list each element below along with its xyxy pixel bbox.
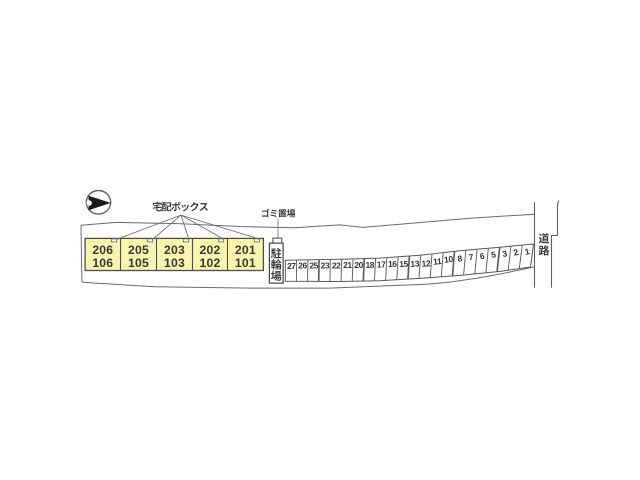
svg-text:106: 106 <box>92 256 113 270</box>
svg-text:12: 12 <box>421 258 431 269</box>
svg-text:26: 26 <box>298 261 307 271</box>
svg-text:25: 25 <box>309 261 318 271</box>
svg-text:103: 103 <box>164 256 185 270</box>
svg-text:11: 11 <box>433 256 443 267</box>
svg-text:202: 202 <box>200 243 221 257</box>
svg-text:15: 15 <box>399 259 409 269</box>
svg-text:17: 17 <box>377 260 386 270</box>
svg-text:203: 203 <box>164 243 185 257</box>
svg-text:105: 105 <box>128 256 149 270</box>
svg-text:16: 16 <box>388 259 397 269</box>
svg-text:20: 20 <box>354 260 363 270</box>
svg-text:206: 206 <box>92 243 113 257</box>
svg-text:21: 21 <box>343 260 352 270</box>
svg-text:102: 102 <box>200 256 221 270</box>
svg-text:27: 27 <box>287 261 296 271</box>
svg-text:101: 101 <box>235 256 256 270</box>
svg-text:10: 10 <box>444 254 454 265</box>
svg-text:23: 23 <box>321 260 330 270</box>
svg-text:18: 18 <box>365 260 374 270</box>
svg-text:22: 22 <box>332 260 341 270</box>
svg-text:13: 13 <box>410 258 420 268</box>
svg-text:205: 205 <box>128 243 149 257</box>
svg-text:201: 201 <box>235 243 256 257</box>
